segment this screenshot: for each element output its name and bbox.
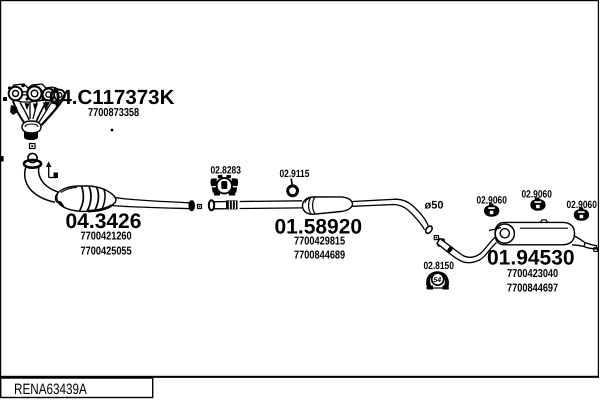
svg-text:7700844697: 7700844697 bbox=[507, 283, 558, 295]
svg-text:ø50: ø50 bbox=[425, 200, 444, 212]
svg-text:7700429815: 7700429815 bbox=[294, 236, 346, 248]
svg-text:04.C117373K: 04.C117373K bbox=[49, 86, 175, 109]
svg-text:02.9115: 02.9115 bbox=[280, 168, 310, 180]
svg-text:54: 54 bbox=[433, 277, 441, 284]
svg-text:01.94530: 01.94530 bbox=[487, 247, 575, 270]
svg-text:7700425055: 7700425055 bbox=[81, 246, 133, 258]
svg-text:7700873358: 7700873358 bbox=[88, 107, 140, 119]
svg-text:7700421260: 7700421260 bbox=[81, 231, 132, 243]
svg-text:RENA63439A: RENA63439A bbox=[14, 381, 87, 398]
svg-text:7700844689: 7700844689 bbox=[294, 250, 345, 262]
svg-text:7700423040: 7700423040 bbox=[507, 268, 558, 280]
svg-text:50: 50 bbox=[222, 184, 228, 190]
svg-text:02.8150: 02.8150 bbox=[424, 260, 454, 272]
svg-text:02.8283: 02.8283 bbox=[211, 165, 241, 177]
